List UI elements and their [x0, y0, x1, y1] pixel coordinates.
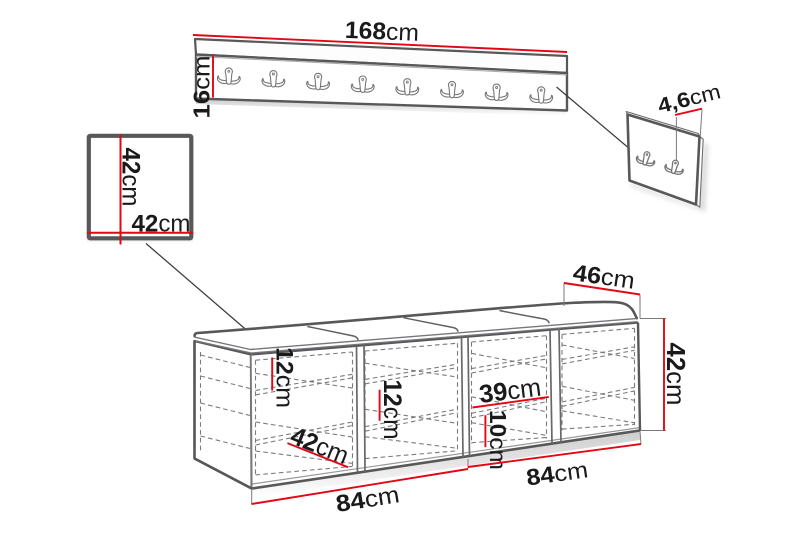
svg-text:168cm: 168cm [344, 17, 419, 47]
svg-text:12cm: 12cm [271, 347, 298, 408]
svg-text:16cm: 16cm [188, 56, 214, 119]
svg-text:42cm: 42cm [117, 148, 145, 207]
svg-text:12cm: 12cm [378, 380, 406, 440]
svg-text:42cm: 42cm [132, 210, 191, 237]
svg-text:42cm: 42cm [661, 343, 691, 406]
